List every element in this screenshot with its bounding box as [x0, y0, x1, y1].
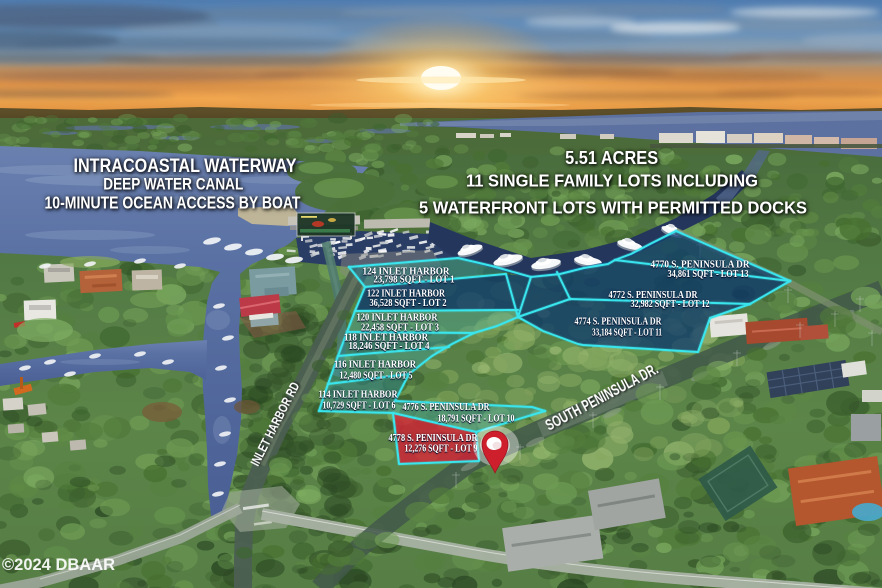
svg-text:11 SINGLE FAMILY LOTS INCLUDIN: 11 SINGLE FAMILY LOTS INCLUDING: [466, 171, 758, 191]
svg-text:DEEP WATER CANAL: DEEP WATER CANAL: [103, 176, 243, 194]
svg-text:4774 S. PENINSULA DR: 4774 S. PENINSULA DR: [575, 316, 662, 327]
svg-text:10-MINUTE OCEAN ACCESS BY BOAT: 10-MINUTE OCEAN ACCESS BY BOAT: [45, 193, 301, 213]
svg-text:114 INLET HARBOR: 114 INLET HARBOR: [319, 389, 398, 400]
svg-text:10,729 SQFT - LOT 6: 10,729 SQFT - LOT 6: [323, 401, 396, 412]
svg-text:18,791 SQFT - LOT 10: 18,791 SQFT - LOT 10: [438, 414, 515, 425]
svg-text:32,982 SQFT - LOT 12: 32,982 SQFT - LOT 12: [631, 299, 710, 310]
svg-text:INTRACOASTAL WATERWAY: INTRACOASTAL WATERWAY: [74, 156, 297, 177]
svg-text:5 WATERFRONT LOTS WITH PERMITT: 5 WATERFRONT LOTS WITH PERMITTED DOCKS: [419, 198, 807, 218]
svg-text:12,480 SQFT - LOT 5: 12,480 SQFT - LOT 5: [340, 371, 413, 382]
svg-text:4776 S. PENINSULA DR: 4776 S. PENINSULA DR: [403, 402, 490, 413]
svg-text:5.51 ACRES: 5.51 ACRES: [565, 148, 658, 168]
svg-text:12,276 SQFT - LOT 9: 12,276 SQFT - LOT 9: [405, 443, 478, 454]
svg-text:23,798 SQFT - LOT 1: 23,798 SQFT - LOT 1: [374, 275, 455, 286]
svg-text:4778 S. PENINSULA DR: 4778 S. PENINSULA DR: [389, 433, 478, 444]
svg-text:36,528 SQFT - LOT 2: 36,528 SQFT - LOT 2: [370, 298, 447, 309]
svg-text:18,246 SQFT - LOT 4: 18,246 SQFT - LOT 4: [349, 341, 431, 352]
svg-text:©2024 DBAAR: ©2024 DBAAR: [2, 556, 115, 574]
svg-text:33,184 SQFT - LOT 11: 33,184 SQFT - LOT 11: [592, 328, 662, 339]
svg-text:116 INLET HARBOR: 116 INLET HARBOR: [334, 359, 416, 370]
svg-text:34,861 SQFT - LOT 13: 34,861 SQFT - LOT 13: [668, 269, 749, 280]
